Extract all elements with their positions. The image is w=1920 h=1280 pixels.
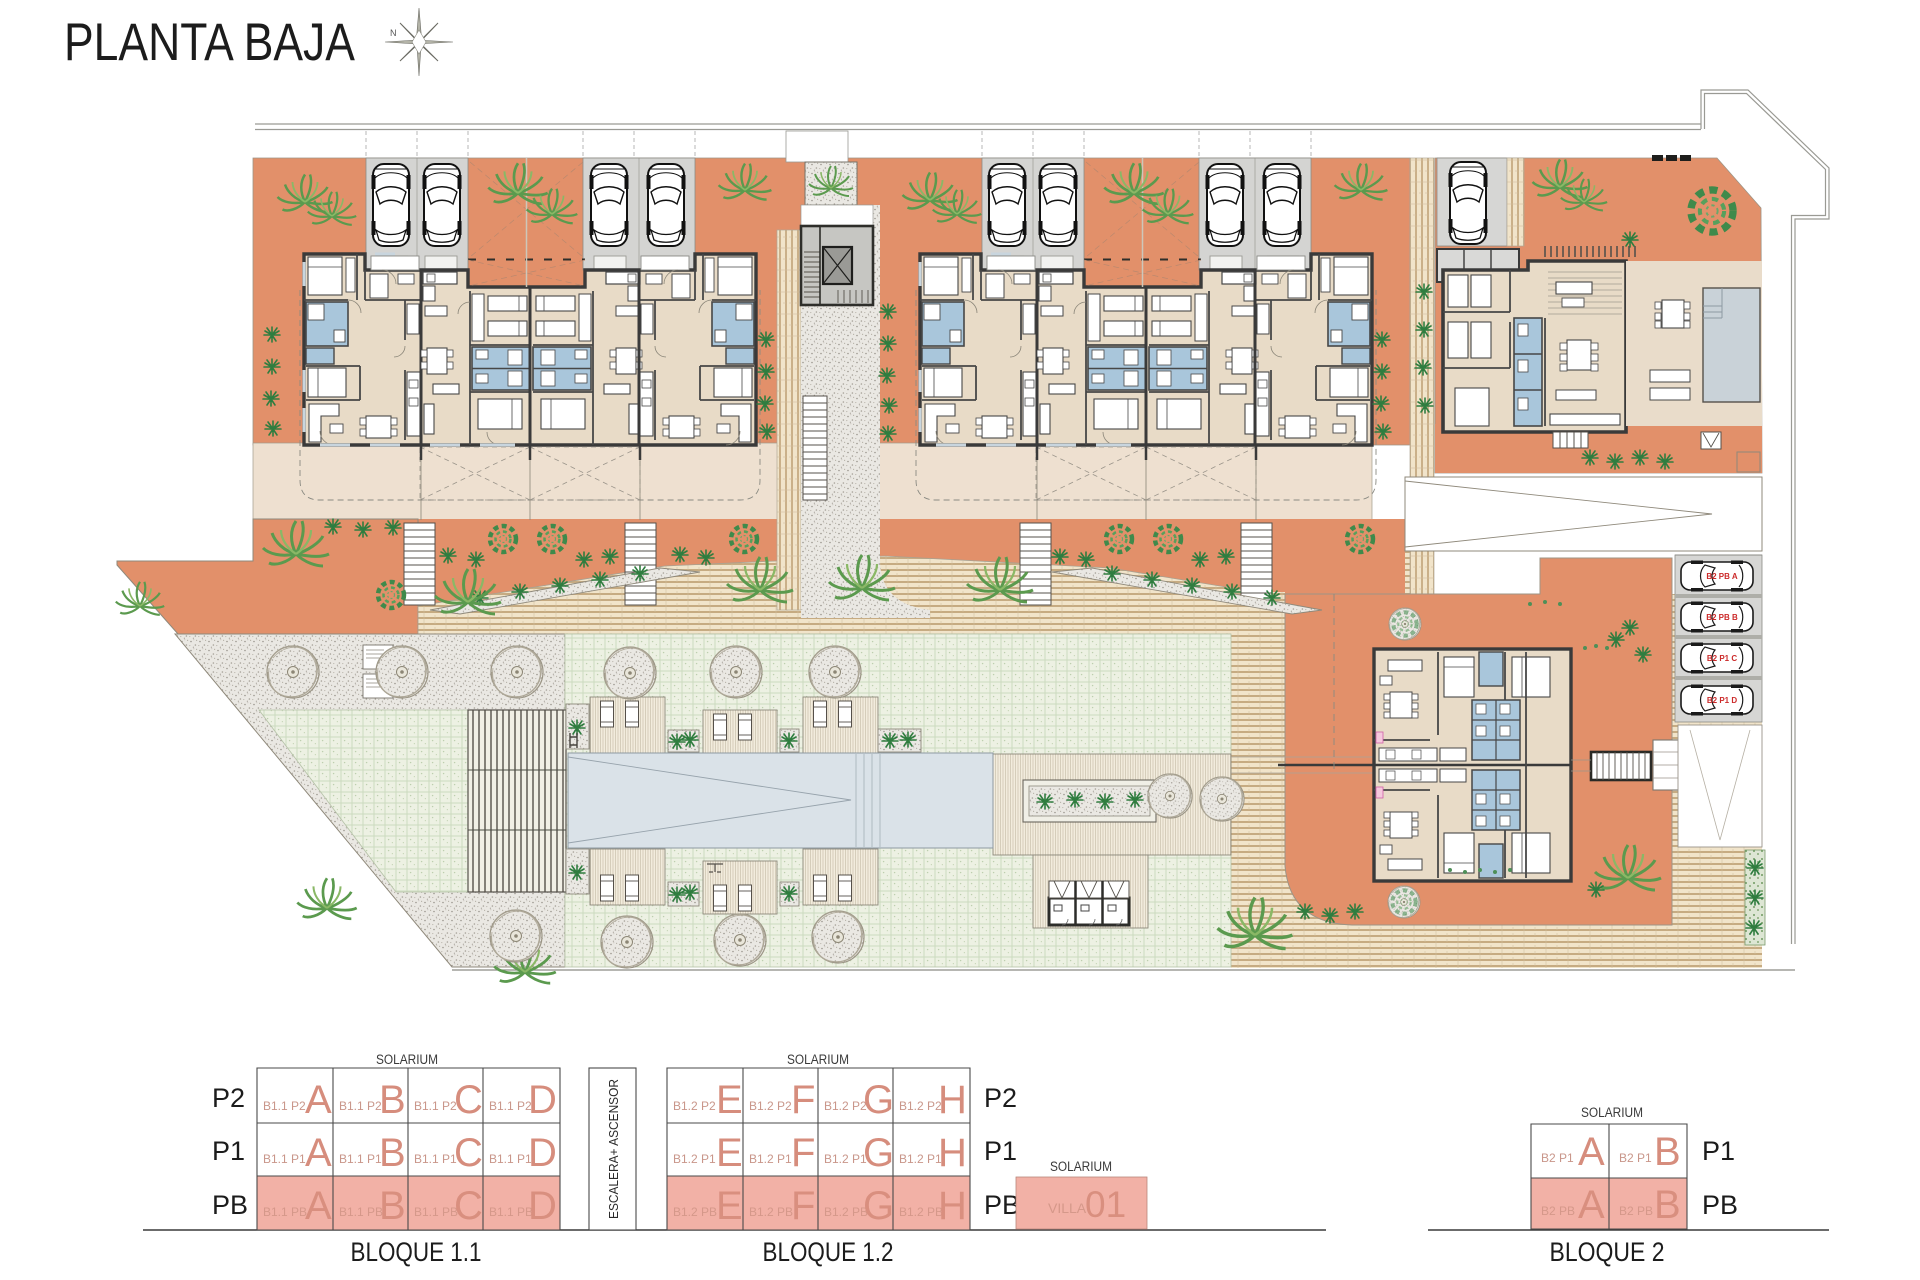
svg-text:P2: P2 [212,1083,245,1113]
svg-text:B1.2 P2: B1.2 P2 [824,1099,867,1113]
svg-text:H: H [938,1131,967,1175]
svg-text:P2: P2 [984,1083,1017,1113]
svg-text:D: D [528,1078,557,1122]
svg-text:B2 P1 D: B2 P1 D [1707,696,1737,705]
svg-text:SOLARIUM: SOLARIUM [1050,1159,1112,1174]
svg-text:P1: P1 [1702,1136,1735,1166]
svg-text:P1: P1 [984,1136,1017,1166]
svg-text:B: B [1654,1130,1681,1174]
svg-text:B1.1 P2: B1.1 P2 [339,1099,382,1113]
svg-text:B1.2 P1: B1.2 P1 [749,1152,792,1166]
svg-text:A: A [305,1131,332,1175]
svg-text:B1.1 P1: B1.1 P1 [489,1152,532,1166]
svg-text:PLANTA BAJA: PLANTA BAJA [64,13,356,72]
svg-text:B2 P1 C: B2 P1 C [1707,654,1737,663]
svg-text:E: E [716,1131,743,1175]
svg-text:B1.2 PB: B1.2 PB [899,1205,943,1219]
svg-text:B2 PB: B2 PB [1619,1204,1653,1218]
svg-text:B1.2 P2: B1.2 P2 [899,1099,942,1113]
svg-text:SOLARIUM: SOLARIUM [1581,1105,1643,1120]
svg-text:B2 P1: B2 P1 [1619,1151,1652,1165]
svg-text:B1.1 P2: B1.1 P2 [263,1099,306,1113]
svg-text:H: H [938,1078,967,1122]
svg-text:B1.1 P2: B1.1 P2 [489,1099,532,1113]
svg-text:D: D [528,1184,557,1228]
svg-text:B2 PB A: B2 PB A [1706,572,1737,581]
svg-text:G: G [863,1078,894,1122]
svg-text:A: A [305,1078,332,1122]
svg-text:PB: PB [212,1190,248,1220]
svg-text:H: H [938,1184,967,1228]
svg-text:B1.1 P2: B1.1 P2 [414,1099,457,1113]
svg-text:C: C [454,1184,483,1228]
svg-text:B1.1 PB: B1.1 PB [414,1205,458,1219]
svg-text:B2 PB B: B2 PB B [1706,613,1738,622]
svg-text:E: E [716,1078,743,1122]
svg-text:PB: PB [984,1190,1020,1220]
svg-text:B2 P1: B2 P1 [1541,1151,1574,1165]
svg-text:F: F [791,1078,815,1122]
svg-text:G: G [863,1184,894,1228]
svg-text:B1.2 P1: B1.2 P1 [824,1152,867,1166]
svg-text:BLOQUE 1.1: BLOQUE 1.1 [351,1237,482,1267]
svg-text:B1.1 PB: B1.1 PB [489,1205,533,1219]
svg-text:C: C [454,1131,483,1175]
svg-text:B1.2 P1: B1.2 P1 [673,1152,716,1166]
svg-text:B1.1 PB: B1.1 PB [339,1205,383,1219]
svg-text:SOLARIUM: SOLARIUM [787,1052,849,1067]
svg-text:P1: P1 [212,1136,245,1166]
svg-text:B1.1 P1: B1.1 P1 [414,1152,457,1166]
svg-text:BLOQUE 1.2: BLOQUE 1.2 [763,1237,894,1267]
svg-text:B1.2 P2: B1.2 P2 [673,1099,716,1113]
svg-text:01: 01 [1085,1184,1126,1225]
svg-text:A: A [305,1184,332,1228]
svg-text:F: F [791,1131,815,1175]
svg-text:B1.1 P1: B1.1 P1 [339,1152,382,1166]
svg-text:B: B [379,1184,406,1228]
svg-text:F: F [791,1184,815,1228]
svg-text:BLOQUE 2: BLOQUE 2 [1550,1237,1665,1267]
svg-text:N: N [390,28,397,38]
svg-text:B1.2 PB: B1.2 PB [824,1205,868,1219]
svg-text:A: A [1578,1183,1605,1227]
svg-text:B1.1 PB: B1.1 PB [263,1205,307,1219]
svg-text:B1.2 PB: B1.2 PB [749,1205,793,1219]
svg-text:B: B [1654,1183,1681,1227]
svg-text:B1.2 P2: B1.2 P2 [749,1099,792,1113]
svg-text:B1.2 PB: B1.2 PB [673,1205,717,1219]
svg-text:A: A [1578,1130,1605,1174]
svg-text:D: D [528,1131,557,1175]
svg-text:B2 PB: B2 PB [1541,1204,1575,1218]
svg-text:B1.1 P1: B1.1 P1 [263,1152,306,1166]
svg-text:PB: PB [1702,1190,1738,1220]
svg-text:VILLA: VILLA [1048,1200,1087,1216]
svg-text:C: C [454,1078,483,1122]
svg-text:SOLARIUM: SOLARIUM [376,1052,438,1067]
svg-text:B: B [379,1131,406,1175]
svg-text:B1.2 P1: B1.2 P1 [899,1152,942,1166]
svg-text:ESCALERA+ ASCENSOR: ESCALERA+ ASCENSOR [606,1079,621,1219]
svg-text:B: B [379,1078,406,1122]
svg-text:E: E [716,1184,743,1228]
svg-text:G: G [863,1131,894,1175]
